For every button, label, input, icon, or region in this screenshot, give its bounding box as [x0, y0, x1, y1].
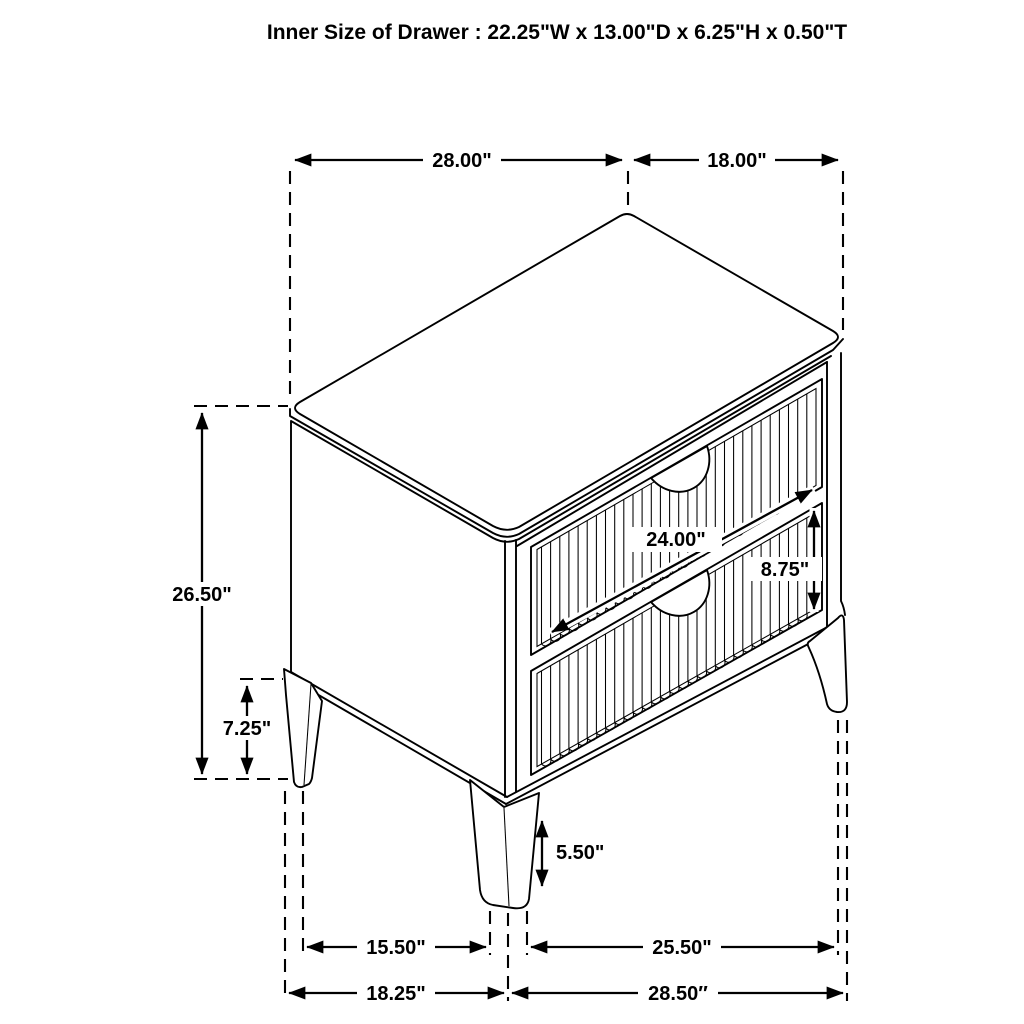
front-corner-edge: [505, 540, 516, 797]
dim-label-base-depth: 28.50″: [648, 983, 708, 1005]
dim-base-width: 18.25": [289, 981, 504, 1005]
dimension-diagram-page: Inner Size of Drawer : 22.25"W x 13.00"D…: [0, 0, 1024, 1024]
dim-label-drawer-width: 24.00": [646, 529, 706, 551]
dim-label-base-width: 18.25": [366, 983, 426, 1005]
dim-top-depth: 18.00": [634, 148, 838, 172]
dim-label-leg-span-side: 25.50": [652, 937, 712, 959]
leg-front: [470, 780, 539, 908]
nightstand-dimension-drawing: Inner Size of Drawer : 22.25"W x 13.00"D…: [0, 0, 1024, 1024]
dim-top-width: 28.00": [295, 148, 622, 172]
leg-right: [808, 615, 847, 712]
dim-label-top-depth: 18.00": [707, 150, 767, 172]
dim-leg-span-side: 25.50": [531, 935, 834, 959]
dim-label-leg-span-front: 15.50": [366, 937, 426, 959]
right-corner-outer-edge: [841, 353, 845, 615]
dim-label-drawer-front-height: 8.75": [761, 559, 809, 581]
dim-case-bottom-height: 7.25": [214, 686, 280, 774]
dim-leg-span-front: 15.50": [307, 935, 486, 959]
dim-leg-height: 5.50": [542, 821, 604, 886]
dim-label-case-bottom-height: 7.25": [223, 718, 271, 740]
dim-label-overall-height: 26.50": [172, 584, 232, 606]
dim-label-top-width: 28.00": [432, 150, 492, 172]
dim-base-depth: 28.50″: [512, 981, 843, 1005]
dim-label-leg-height: 5.50": [556, 842, 604, 864]
page-title: Inner Size of Drawer : 22.25"W x 13.00"D…: [267, 21, 847, 44]
